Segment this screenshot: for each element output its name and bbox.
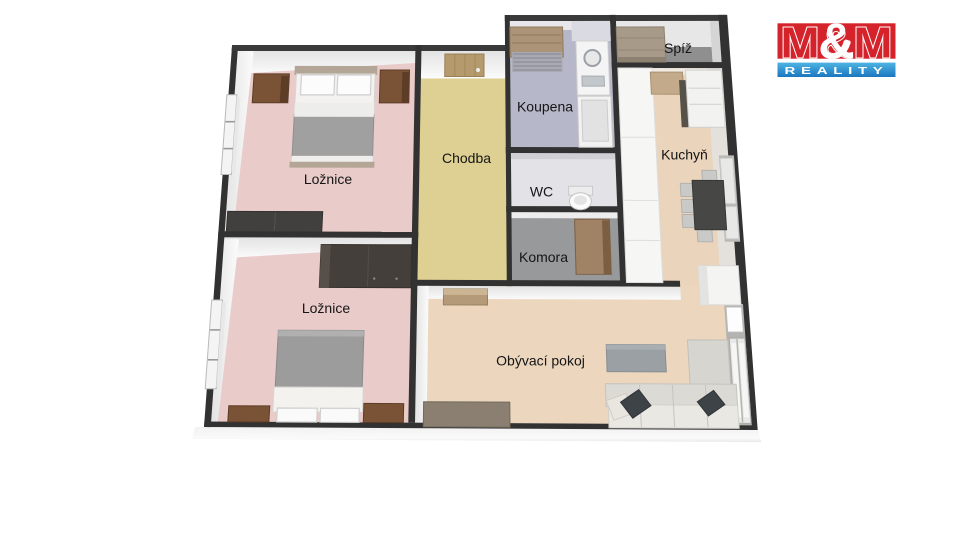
svg-text:Ložnice: Ložnice xyxy=(304,171,352,187)
svg-text:Komora: Komora xyxy=(519,249,568,265)
svg-text:Spíž: Spíž xyxy=(664,40,692,56)
svg-text:Ložnice: Ložnice xyxy=(302,300,350,316)
svg-text:Koupena: Koupena xyxy=(517,99,573,115)
svg-text:&: & xyxy=(818,13,854,69)
svg-text:Kuchyň: Kuchyň xyxy=(661,147,708,163)
svg-text:REALITY: REALITY xyxy=(785,65,889,77)
svg-text:WC: WC xyxy=(530,184,553,200)
svg-text:Obývací pokoj: Obývací pokoj xyxy=(496,353,585,369)
svg-text:Chodba: Chodba xyxy=(442,150,491,166)
